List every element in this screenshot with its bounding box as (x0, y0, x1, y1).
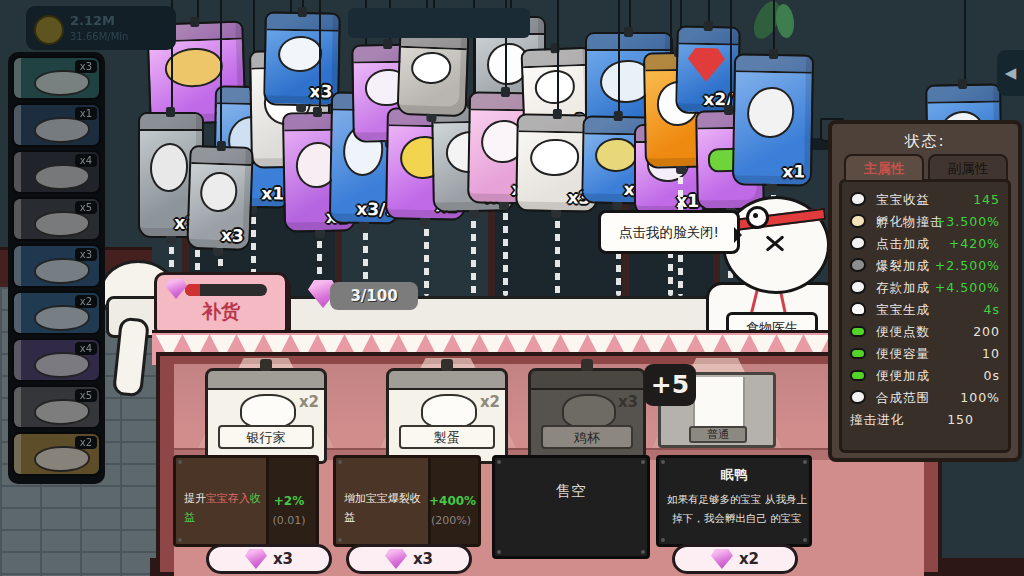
bag-string (220, 0, 222, 152)
bag-tear-edge (14, 340, 21, 380)
hanging-bag[interactable]: x3 (186, 145, 254, 251)
item-sketch (34, 164, 90, 190)
stat-label: 宝宝生成 (876, 302, 930, 319)
item-count: x3 (75, 248, 97, 261)
stat-label: 便便容量 (876, 346, 930, 363)
item-figure (562, 394, 615, 429)
bag-nozzle (612, 202, 622, 210)
item-sketch (34, 211, 90, 237)
baby-icon (850, 192, 866, 206)
bag-nozzle (499, 202, 509, 210)
bag-tear-edge (14, 105, 21, 145)
upgrade-value: +400% (429, 494, 473, 508)
item-sketch (34, 117, 90, 143)
worm-icon (850, 348, 866, 359)
coins-icon (595, 138, 638, 172)
item-count: x2 (480, 393, 500, 411)
stat-row: 合成范围100% (848, 387, 1002, 409)
bag-nozzle (296, 104, 306, 112)
sidebar-item-4[interactable]: x5 (12, 197, 101, 241)
collapse-panel-button[interactable]: ◀ (997, 50, 1024, 96)
bag-hook (581, 359, 593, 371)
item-sketch (34, 399, 90, 425)
shop-item-2[interactable]: x2製蛋 (386, 368, 508, 464)
stat-value: 200 (973, 324, 1000, 339)
gem-icon (711, 549, 733, 569)
bag-tie (624, 27, 633, 37)
tab-sub-attributes[interactable]: 副属性 (928, 154, 1008, 180)
bag-nozzle (551, 210, 561, 218)
bag-count: x1 (261, 183, 284, 203)
speech-bubble[interactable]: 点击我的脸关闭! (598, 210, 740, 254)
price-button-1[interactable]: x3 (206, 544, 332, 574)
bag-nozzle (166, 236, 176, 244)
doctor-head-mirror (746, 206, 769, 229)
bag-tear-edge (14, 58, 21, 98)
item-count: x5 (75, 389, 97, 402)
bag-tie (166, 107, 175, 117)
status-title: 状态: (832, 132, 1018, 151)
stat-row: 孵化物撞击+3.500% (848, 211, 1002, 233)
coin-icon (34, 15, 64, 45)
hanging-bag[interactable] (397, 29, 470, 117)
gem-icon (165, 279, 187, 299)
item-count: x2 (299, 393, 319, 411)
stat-label: 孵化物撞击 (876, 214, 944, 231)
bag-nozzle (767, 184, 777, 192)
bag-fold (208, 371, 324, 390)
stat-label: 存款加成 (876, 280, 930, 297)
stat-value: +3.500% (935, 214, 1000, 229)
restock-progress-bar (185, 284, 267, 296)
bag-string (319, 0, 321, 118)
worm-icon (850, 370, 866, 381)
poster-label: 普通 (689, 426, 747, 443)
stat-row: 存款加成+4.500% (848, 277, 1002, 299)
shop-item-3[interactable]: x3鸡杯 (528, 368, 646, 464)
sheep-icon (277, 35, 322, 72)
figure-icon (410, 51, 452, 85)
bag-tie (298, 7, 307, 17)
price-button-3[interactable]: x2 (672, 544, 798, 574)
bag-tie (383, 39, 392, 49)
bag-tear-edge (14, 152, 21, 192)
sidebar-item-2[interactable]: x1 (12, 103, 101, 147)
stat-row: 爆裂加成+2.500% (848, 255, 1002, 277)
sidebar-item-7[interactable]: x4 (12, 338, 101, 382)
item-count: x1 (75, 107, 97, 120)
bag-tear-edge (14, 293, 21, 333)
inventory-sidebar: x3x1x4x5x3x2x4x5x2 (8, 52, 105, 484)
bag-tie (614, 111, 623, 121)
upgrade-current: (0.01) (267, 514, 311, 527)
bag-nozzle (359, 222, 369, 230)
bag-nozzle (315, 230, 325, 238)
item-count: x3 (618, 393, 638, 411)
stat-value: 145 (973, 192, 1000, 207)
info-description: 如果有足够多的宝宝 从我身上掉下，我会孵出自己 的宝宝 (667, 490, 807, 528)
item-sketch (34, 352, 90, 378)
bag-nozzle (676, 166, 686, 174)
sold-out-label: 售空 (495, 482, 647, 501)
stat-value: 150 (947, 412, 974, 427)
stat-value: +4.500% (935, 280, 1000, 295)
top-bar-button[interactable] (348, 8, 530, 38)
bag-tie (724, 105, 733, 115)
sidebar-item-3[interactable]: x4 (12, 150, 101, 194)
plus-badge: +5 (644, 364, 696, 406)
tab-main-attributes[interactable]: 主属性 (844, 154, 924, 180)
item-sketch (34, 70, 90, 96)
bag-nozzle (420, 218, 430, 226)
stat-row-evolution: 撞击进化150 (848, 409, 1002, 431)
bag-tear-edge (14, 434, 21, 474)
burst-icon (850, 258, 866, 272)
item-count: x4 (75, 154, 97, 167)
sidebar-item-6[interactable]: x2 (12, 291, 101, 335)
stat-value: +2.500% (935, 258, 1000, 273)
hanging-bag[interactable]: x3 (263, 11, 341, 106)
money-amount: 2.12M (70, 13, 115, 28)
bag-string (557, 0, 559, 120)
item-name-plate: 製蛋 (399, 425, 494, 449)
stat-row: 宝宝生成4s (848, 299, 1002, 321)
bag-tear-edge (14, 199, 21, 239)
click-icon (850, 236, 866, 250)
stat-label: 便便点数 (876, 324, 930, 341)
stat-value: 10 (982, 346, 1000, 361)
drip-stream (555, 208, 560, 296)
sidebar-item-9[interactable]: x2 (12, 432, 101, 476)
stat-value: 0s (984, 368, 1000, 383)
bag-nozzle (469, 210, 479, 218)
bag-fold (531, 371, 643, 390)
upgrade-description: 提升宝宝存入收益 (184, 490, 268, 527)
worm-icon (850, 326, 866, 337)
bag-tie (217, 141, 226, 151)
price-amount: x2 (739, 550, 759, 568)
sidebar-item-1[interactable]: x3 (12, 56, 101, 100)
bag-tie (553, 109, 562, 119)
bag-tear-edge (14, 246, 21, 286)
bag-tear-edge (14, 387, 21, 427)
status-panel: 状态: 主属性 副属性 宝宝收益145孵化物撞击+3.500%点击加成+420%… (828, 120, 1022, 462)
info-title: 眠鸭 (659, 466, 809, 484)
bag-string (618, 0, 620, 122)
gray-item-icon (150, 143, 188, 192)
item-name-plate: 鸡杯 (541, 425, 633, 449)
stat-value: +420% (949, 236, 1000, 251)
bag-string (964, 0, 966, 90)
bag-tie (769, 49, 778, 59)
stat-row: 便便加成0s (848, 365, 1002, 387)
goose-icon (850, 302, 866, 316)
cat-icon (534, 70, 576, 105)
flower-icon (850, 390, 866, 404)
bag-string (730, 0, 732, 116)
item-figure (421, 394, 476, 429)
status-list: 宝宝收益145孵化物撞击+3.500%点击加成+420%爆裂加成+2.500%存… (839, 179, 1011, 453)
item-count: x2 (75, 295, 97, 308)
item-count: x2 (75, 436, 97, 449)
upgrade-value: +2% (267, 494, 311, 508)
stat-label: 宝宝收益 (876, 192, 930, 209)
item-sketch (34, 305, 90, 331)
bag-tie (501, 87, 510, 97)
drip-stream (503, 200, 508, 296)
stat-value: 100% (960, 390, 1000, 405)
upgrade-card-2[interactable]: 增加宝宝爆裂收益+400%(200%) (333, 455, 481, 547)
bag-hook (260, 359, 272, 371)
restock-button[interactable]: 补货 (154, 272, 288, 338)
item-sketch (34, 258, 90, 284)
gem-icon (385, 549, 407, 569)
stat-row: 宝宝收益145 (848, 189, 1002, 211)
ruby-icon (687, 48, 725, 82)
bag-count: x1 (782, 161, 805, 181)
plate-icon (530, 138, 579, 176)
stat-label: 合成范围 (876, 390, 930, 407)
lamp-icon (747, 86, 795, 138)
item-name-plate: 银行家 (218, 425, 313, 449)
gem-icon (245, 549, 267, 569)
upgrade-description: 增加宝宝爆裂收益 (344, 490, 428, 527)
stat-label: 便便加成 (876, 368, 930, 385)
sidebar-item-8[interactable]: x5 (12, 385, 101, 429)
gray-item-icon (199, 171, 238, 212)
hanging-bag[interactable]: x1 (732, 53, 814, 186)
stat-label: 点击加成 (876, 236, 930, 253)
stat-row: 点击加成+420% (848, 233, 1002, 255)
item-sketch (34, 446, 90, 472)
stat-label: 爆裂加成 (876, 258, 930, 275)
deposit-icon (850, 280, 866, 294)
upgrade-card-3[interactable]: 售空 (492, 455, 650, 559)
bag-fold (389, 371, 505, 390)
stat-row: 便便点数200 (848, 321, 1002, 343)
item-count: x4 (75, 342, 97, 355)
bag-nozzle (213, 248, 223, 256)
money-rate: 31.66M/Min (70, 31, 128, 42)
gem-counter: 3/100 (308, 278, 428, 312)
price-amount: x3 (273, 550, 293, 568)
drip-stream (471, 208, 476, 296)
bag-nozzle (426, 114, 436, 122)
bag-tie (190, 17, 199, 27)
upgrade-card-4[interactable]: 眠鸭如果有足够多的宝宝 从我身上掉下，我会孵出自己 的宝宝 (656, 455, 812, 547)
bag-count: x3 (309, 81, 332, 101)
bag-tie (704, 21, 713, 31)
money-hud: 2.12M 31.66M/Min (26, 6, 176, 50)
bag-tie (313, 107, 322, 117)
bag-hook (441, 359, 453, 371)
sidebar-item-5[interactable]: x3 (12, 244, 101, 288)
shop-item-1[interactable]: x2银行家 (205, 368, 327, 464)
stat-value: 4s (984, 302, 1000, 317)
restock-label: 补货 (157, 299, 285, 325)
hatch-icon (850, 214, 866, 228)
upgrade-card-1[interactable]: 提升宝宝存入收益+2%(0.01) (173, 455, 319, 547)
item-figure (240, 394, 295, 429)
upgrade-current: (200%) (429, 514, 473, 527)
gem-count: 3/100 (330, 282, 418, 310)
bag-count: x3 (221, 225, 244, 246)
stat-label: 撞击进化 (850, 412, 904, 429)
item-count: x3 (75, 60, 97, 73)
item-count: x5 (75, 201, 97, 214)
price-amount: x3 (413, 550, 433, 568)
price-button-2[interactable]: x3 (346, 544, 472, 574)
bag-tie (958, 79, 967, 89)
stat-row: 便便容量10 (848, 343, 1002, 365)
